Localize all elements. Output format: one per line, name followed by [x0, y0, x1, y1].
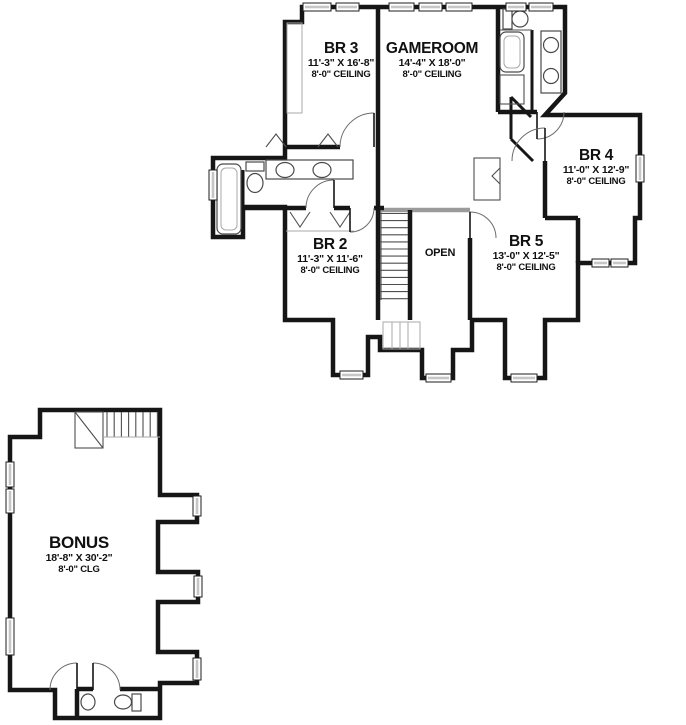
toilet-fixture	[115, 695, 132, 709]
room-label-br2: BR 2 11'-3" X 11'-6" 8'-0" CEILING	[260, 236, 400, 277]
stairs-upper	[380, 210, 420, 349]
room-name: BONUS	[9, 533, 149, 552]
bonus-bath	[50, 663, 162, 716]
room-ceiling: 8'-0" CEILING	[536, 177, 656, 188]
sink-fixture	[544, 38, 559, 53]
sink-fixture	[276, 163, 294, 178]
room-ceiling: 8'-0" CEILING	[260, 266, 400, 277]
toilet-tank	[246, 162, 264, 171]
toilet-fixture	[512, 11, 528, 27]
room-label-gameroom: GAMEROOM 14'-4" X 18'-0" 8'-0" CEILING	[362, 40, 502, 81]
room-name: BR 2	[260, 236, 400, 253]
room-label-open: OPEN	[412, 247, 468, 259]
sink-fixture	[313, 163, 331, 178]
toilet-fixture	[247, 174, 263, 193]
sink-fixture	[81, 694, 95, 710]
room-label-br5: BR 5 13'-0" X 12'-5" 8'-0" CEILING	[456, 233, 596, 274]
room-name: BR 5	[456, 233, 596, 250]
floor-plan-drawing	[0, 0, 686, 725]
room-ceiling: 8'-0" CLG	[9, 565, 149, 576]
room-label-br4: BR 4 11'-0" X 12'-9" 8'-0" CEILING	[536, 147, 656, 188]
room-name: BR 4	[536, 147, 656, 164]
room-ceiling: 8'-0" CEILING	[362, 70, 502, 81]
toilet-tank	[132, 694, 141, 711]
sink-fixture	[544, 69, 559, 84]
room-name: GAMEROOM	[362, 40, 502, 57]
toilet-tank	[503, 9, 512, 29]
room-ceiling: 8'-0" CEILING	[456, 263, 596, 274]
floor-plan-page: BR 3 11'-3" X 16'-8" 8'-0" CEILING GAMER…	[0, 0, 686, 725]
stairs-bonus	[75, 412, 160, 448]
room-label-bonus: BONUS 18'-8" X 30'-2" 8'-0" CLG	[9, 533, 149, 575]
